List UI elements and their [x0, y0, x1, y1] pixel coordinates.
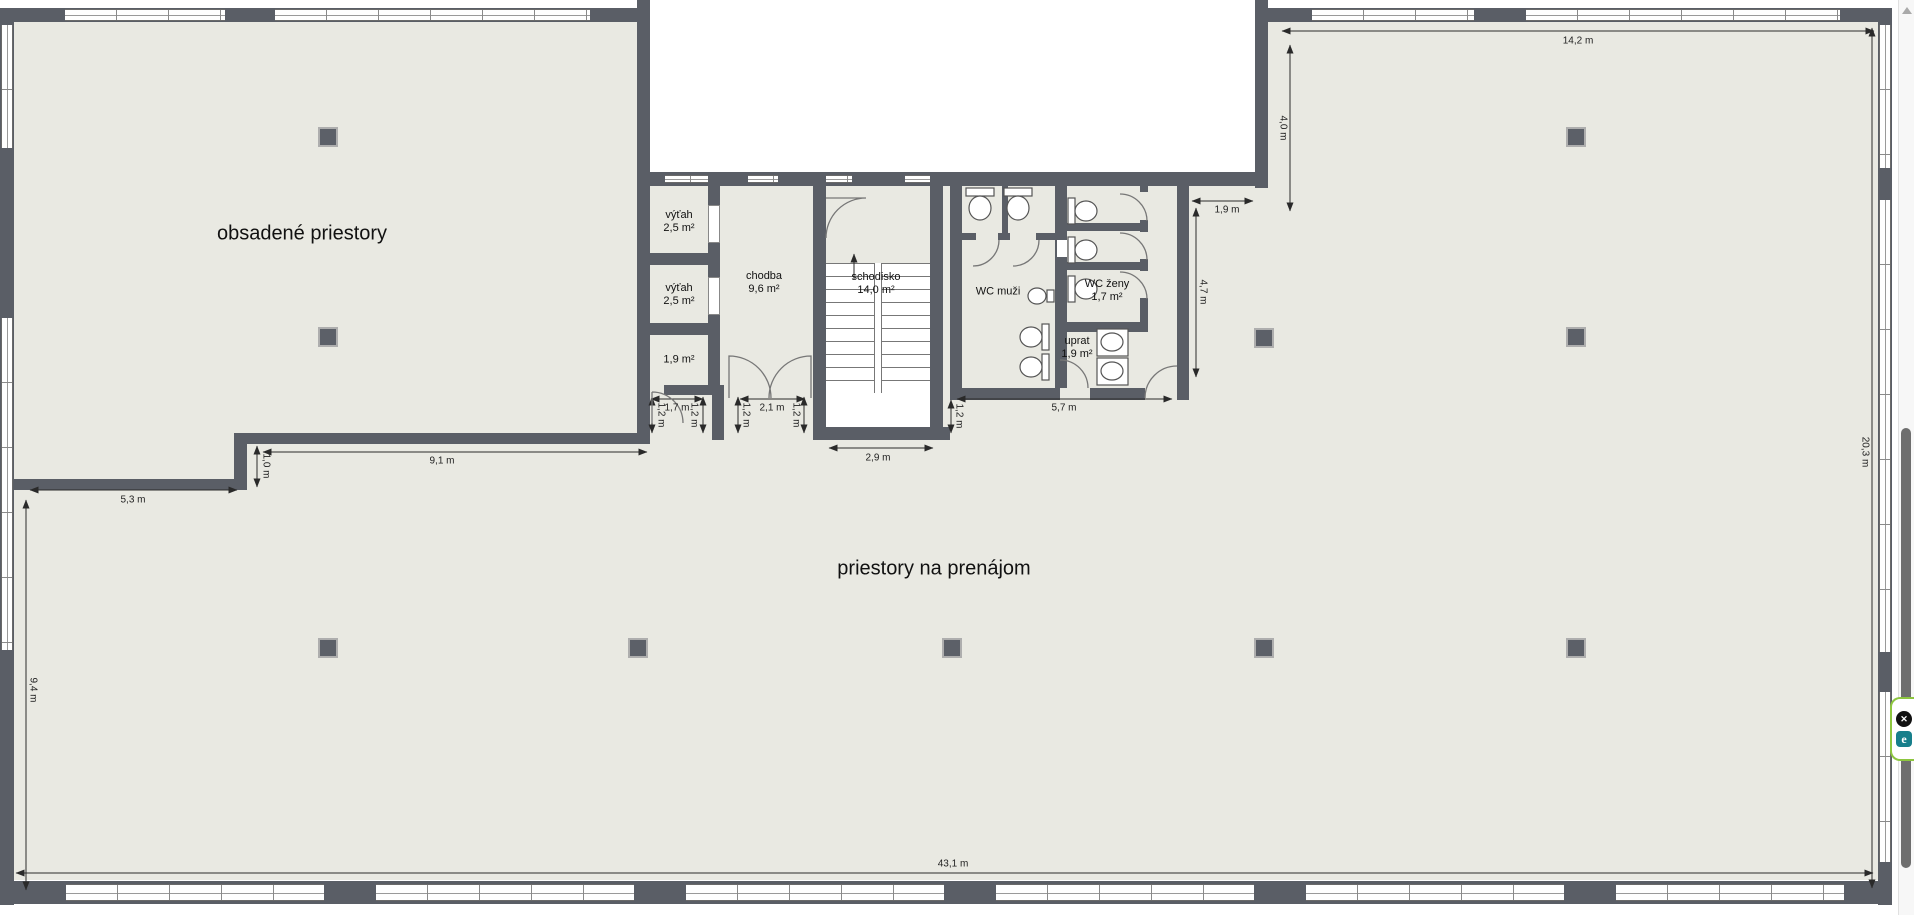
- dimension-label: 14,2 m: [1563, 36, 1594, 47]
- room-name: výťah: [665, 282, 692, 294]
- room-name: WC ženy: [1085, 278, 1130, 290]
- dimension-label: 1,2 m: [954, 403, 965, 428]
- room-area: 1,7 m²: [1091, 291, 1122, 303]
- dimension-label: 1,2 m: [791, 402, 802, 427]
- dimension-label: 4,0 m: [1278, 115, 1289, 140]
- room-label-lift-2: výťah 2,5 m²: [663, 282, 694, 308]
- dimension-label: 4,7 m: [1198, 279, 1209, 304]
- plan-annotations: [0, 0, 1914, 915]
- dimension-label: 2,9 m: [865, 453, 890, 464]
- dimension-label: 1,7 m: [664, 403, 689, 414]
- floor-plan-canvas: obsadené priestory priestory na prenájom…: [0, 0, 1914, 915]
- dimension-label: 9,4 m: [28, 677, 39, 702]
- room-label-cleaning: uprat 1,9 m²: [1061, 335, 1092, 361]
- occupied-area-label: obsadené priestory: [217, 223, 387, 246]
- eset-logo-icon[interactable]: e: [1896, 731, 1912, 747]
- door-arcs: [652, 194, 1177, 423]
- room-area: 9,6 m²: [748, 283, 779, 295]
- dimension-label: 1,2 m: [741, 402, 752, 427]
- room-area: 2,5 m²: [663, 222, 694, 234]
- room-area: 14,0 m²: [857, 284, 894, 296]
- room-name: chodba: [746, 270, 782, 282]
- room-label-wc-women: WC ženy 1,7 m²: [1085, 278, 1130, 304]
- room-label-wc-men: WC muži: [976, 286, 1021, 299]
- dimension-label: 1,9 m: [1214, 205, 1239, 216]
- dimension-label: 9,1 m: [429, 456, 454, 467]
- dimension-label: 5,7 m: [1051, 403, 1076, 414]
- room-area: 1,9 m²: [1061, 348, 1092, 360]
- overlay-widget[interactable]: ✕ e: [1890, 697, 1914, 761]
- dimension-label: 20,3 m: [1860, 437, 1871, 468]
- dimension-label: 1,2 m: [689, 402, 700, 427]
- room-name: uprat: [1064, 335, 1089, 347]
- dimension-label: 2,1 m: [759, 403, 784, 414]
- room-label-small-room: 1,9 m²: [663, 354, 694, 367]
- scrollbar-thumb[interactable]: [1901, 428, 1911, 868]
- for-rent-area-label: priestory na prenájom: [837, 558, 1030, 581]
- room-area: 2,5 m²: [663, 295, 694, 307]
- room-name: schodisko: [852, 271, 901, 283]
- room-name: výťah: [665, 209, 692, 221]
- dimension-label: 43,1 m: [938, 859, 969, 870]
- close-icon[interactable]: ✕: [1896, 711, 1912, 727]
- room-name: WC muži: [976, 286, 1021, 298]
- dimension-lines: [16, 28, 1874, 890]
- room-label-stairs: schodisko 14,0 m²: [852, 271, 901, 297]
- dimension-label: 1,2 m: [656, 402, 667, 427]
- room-label-corridor: chodba 9,6 m²: [746, 270, 782, 296]
- dimension-label: 5,3 m: [120, 495, 145, 506]
- dimension-label: 1,0 m: [261, 453, 272, 478]
- scrollbar-up-arrow[interactable]: [1902, 7, 1912, 14]
- room-area: 1,9 m²: [663, 354, 694, 366]
- room-label-lift-1: výťah 2,5 m²: [663, 209, 694, 235]
